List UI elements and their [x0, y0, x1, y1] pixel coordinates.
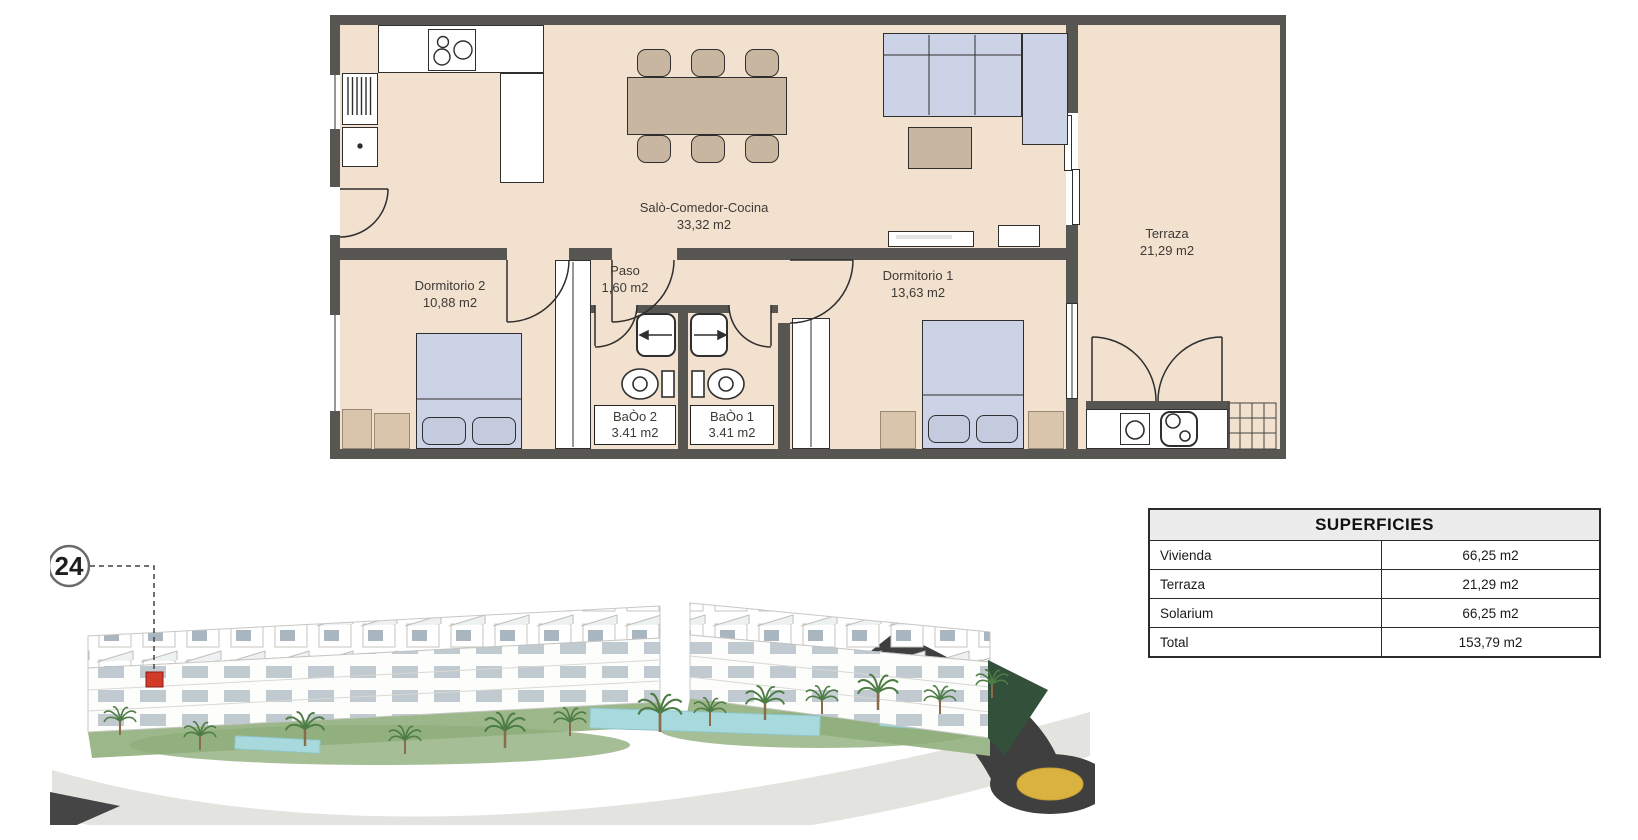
- shower-arrows: [640, 331, 726, 339]
- window-glass-lines: [335, 75, 1072, 411]
- table-row: Solarium 66,25 m2: [1150, 599, 1599, 628]
- terrace-tile-grid: [1228, 403, 1276, 449]
- bath2-door-arc: [595, 305, 637, 347]
- label-bano1: BaÒo 1 3.41 m2: [690, 405, 774, 445]
- roundabout-center: [1017, 768, 1083, 800]
- row-value: 153,79 m2: [1382, 628, 1599, 656]
- hob-burner-icon: [454, 41, 472, 59]
- bath2-arrowhead: [640, 331, 648, 339]
- kitchen-fixtures: [348, 37, 472, 149]
- surfaces-table: SUPERFICIES Vivienda 66,25 m2 Terraza 21…: [1148, 508, 1601, 658]
- dormitorio2-name: Dormitorio 2: [375, 277, 525, 294]
- table-row: Total 153,79 m2: [1150, 628, 1599, 656]
- label-terraza: Terraza 21,29 m2: [1092, 225, 1242, 259]
- sink-drainer-icon: [348, 77, 371, 115]
- building-render: 24: [50, 540, 1095, 825]
- terrace-door-arc-left: [1092, 337, 1156, 401]
- paso-name: Paso: [570, 262, 680, 279]
- table-row: Vivienda 66,25 m2: [1150, 541, 1599, 570]
- heater-dial-icon: [1166, 414, 1180, 428]
- bano1-name: BaÒo 1: [710, 409, 754, 425]
- bath1-door-arc: [729, 305, 771, 347]
- dormitorio1-area: 13,63 m2: [843, 284, 993, 301]
- living-area: 33,32 m2: [604, 216, 804, 233]
- bath1-arrowhead: [718, 331, 726, 339]
- row-label: Vivienda: [1150, 541, 1382, 569]
- row-value: 66,25 m2: [1382, 599, 1599, 627]
- bath2-cistern: [662, 371, 674, 397]
- label-dormitorio2: Dormitorio 2 10,88 m2: [375, 277, 525, 311]
- hob-burner-icon: [434, 49, 450, 65]
- living-name: Salò-Comedor-Cocina: [604, 199, 804, 216]
- bath1-toilet-bowl: [719, 377, 733, 391]
- surfaces-table-title: SUPERFICIES: [1150, 510, 1599, 541]
- dormitorio1-name: Dormitorio 1: [843, 267, 993, 284]
- brochure-page: Salò-Comedor-Cocina 33,32 m2 Paso 1,60 m…: [0, 0, 1638, 840]
- terraza-area: 21,29 m2: [1092, 242, 1242, 259]
- bath-fixtures: [622, 369, 744, 399]
- row-label: Solarium: [1150, 599, 1382, 627]
- label-living: Salò-Comedor-Cocina 33,32 m2: [604, 199, 804, 233]
- bath2-toilet-bowl: [633, 377, 647, 391]
- label-dormitorio1: Dormitorio 1 13,63 m2: [843, 267, 993, 301]
- bano1-area: 3.41 m2: [709, 425, 756, 441]
- row-label: Terraza: [1150, 570, 1382, 598]
- bano2-name: BaÒo 2: [613, 409, 657, 425]
- sofa-cushion-lines: [883, 35, 1022, 115]
- paso-area: 1,60 m2: [570, 279, 680, 296]
- washer-drum-icon: [1126, 421, 1144, 439]
- floor-plan: Salò-Comedor-Cocina 33,32 m2 Paso 1,60 m…: [330, 15, 1286, 459]
- row-value: 66,25 m2: [1382, 541, 1599, 569]
- heater-dial-icon: [1180, 431, 1190, 441]
- highlighted-unit: [146, 672, 163, 687]
- table-row: Terraza 21,29 m2: [1150, 570, 1599, 599]
- row-value: 21,29 m2: [1382, 570, 1599, 598]
- terrace-door-arc-right: [1158, 337, 1222, 401]
- dormitorio2-area: 10,88 m2: [375, 294, 525, 311]
- bath1-cistern: [692, 371, 704, 397]
- garden: [130, 725, 630, 765]
- terraza-name: Terraza: [1092, 225, 1242, 242]
- hob-burner-icon: [438, 37, 449, 48]
- row-label: Total: [1150, 628, 1382, 656]
- entry-door-arc: [340, 189, 388, 237]
- label-bano2: BaÒo 2 3.41 m2: [594, 405, 676, 445]
- bano2-area: 3.41 m2: [612, 425, 659, 441]
- appliance-knob-icon: [358, 144, 362, 148]
- unit-number: 24: [55, 551, 84, 581]
- label-paso: Paso 1,60 m2: [570, 262, 680, 296]
